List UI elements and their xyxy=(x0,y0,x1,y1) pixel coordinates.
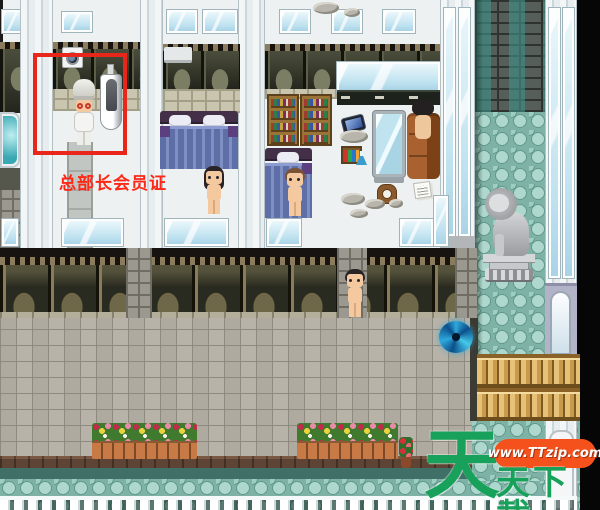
mirror-base xyxy=(374,177,404,183)
cornice-dentils xyxy=(0,42,20,49)
book-row xyxy=(271,135,295,144)
stone xyxy=(341,193,365,205)
watermark-big-char: 天 xyxy=(424,427,500,503)
book-row xyxy=(304,123,328,132)
watermark-url: www.TTzip.com xyxy=(488,446,600,461)
potion-bottles xyxy=(344,150,359,162)
bed-trim xyxy=(160,126,170,137)
book-row xyxy=(304,111,328,120)
book-row xyxy=(271,99,295,108)
book-row xyxy=(271,111,295,120)
cornice-dentils xyxy=(265,44,440,51)
lion-foreleg xyxy=(495,234,504,256)
brick-wainscot xyxy=(163,89,240,113)
npc-body xyxy=(288,186,302,203)
highlight-box xyxy=(33,53,127,155)
window xyxy=(167,10,197,33)
watermark-brand: 天下載 xyxy=(496,466,600,510)
flower-bed xyxy=(297,423,398,459)
npc-legs xyxy=(349,303,361,317)
paper-lines xyxy=(416,185,428,195)
stone xyxy=(365,199,385,209)
npc-body xyxy=(348,287,362,304)
window xyxy=(62,219,123,246)
book-row xyxy=(304,99,328,108)
book-row xyxy=(304,135,328,144)
window xyxy=(165,219,228,246)
window xyxy=(267,219,301,246)
statue-pedestal-base xyxy=(485,268,533,282)
wall-pillar xyxy=(238,0,265,248)
stone xyxy=(344,8,360,17)
npc-legs xyxy=(289,202,301,216)
phone-screen xyxy=(345,117,363,131)
bed-trim xyxy=(228,126,238,137)
npc-street-walker[interactable] xyxy=(343,269,367,319)
stone xyxy=(389,199,403,208)
arched-door[interactable] xyxy=(550,291,571,355)
npc-brown-hair[interactable] xyxy=(283,168,307,218)
stone xyxy=(350,209,368,218)
npc-legs xyxy=(208,200,220,214)
exterior-cornice xyxy=(0,248,477,257)
stone xyxy=(340,130,368,143)
alley-pillar xyxy=(126,248,152,320)
lion-statue[interactable] xyxy=(477,186,539,284)
double-bed[interactable] xyxy=(160,111,238,169)
annotation-text: 总部长会员证 xyxy=(59,169,167,194)
air-conditioner xyxy=(164,47,192,63)
stone xyxy=(313,2,339,14)
flower-bed xyxy=(92,423,197,459)
alley-pillar xyxy=(455,248,477,320)
tall-window-strip xyxy=(459,8,470,236)
game-viewport[interactable]: 总部长会员证 天 www.TTzip.com 天下載 xyxy=(0,0,600,510)
bookshelf[interactable] xyxy=(267,94,299,146)
window xyxy=(400,219,433,246)
teal-ledge xyxy=(0,468,472,479)
lion-head xyxy=(489,194,509,212)
corridor-wall xyxy=(475,0,545,112)
npc-face xyxy=(287,173,303,186)
npc-back xyxy=(415,115,431,139)
planter-box xyxy=(92,441,197,459)
paper-stack xyxy=(413,181,432,199)
planter-box xyxy=(297,441,398,459)
npc-couch-sitter[interactable] xyxy=(411,99,435,143)
potted-flower xyxy=(399,437,413,469)
bed-blanket xyxy=(160,126,238,169)
clock-face xyxy=(382,189,392,199)
standing-mirror[interactable] xyxy=(372,110,406,178)
bathtub[interactable] xyxy=(0,112,20,168)
bath-water xyxy=(3,116,17,164)
npc-long-hair-woman[interactable] xyxy=(202,166,226,216)
window xyxy=(203,10,237,33)
window xyxy=(383,10,415,33)
tall-window-strip xyxy=(563,8,574,278)
window xyxy=(280,10,310,33)
npc-face xyxy=(206,171,222,184)
npc-hair xyxy=(412,99,434,116)
wooden-fence xyxy=(477,388,580,421)
wooden-fence xyxy=(477,354,580,388)
large-window xyxy=(337,62,440,92)
blue-portal[interactable] xyxy=(439,321,473,353)
window xyxy=(62,12,92,32)
exterior-arched-wall xyxy=(0,265,477,312)
couch-seam xyxy=(409,155,427,157)
flower-pot xyxy=(401,457,411,468)
bookshelf[interactable] xyxy=(300,94,332,146)
ornate-wall xyxy=(0,49,20,113)
tall-window-strip xyxy=(549,8,560,278)
mirror-glass xyxy=(376,114,402,174)
book-row xyxy=(271,123,295,132)
cornice-dentils xyxy=(0,257,477,265)
npc-face xyxy=(347,274,363,287)
map-edge xyxy=(577,0,600,510)
npc-body xyxy=(207,184,221,201)
wall-base xyxy=(0,168,20,190)
window xyxy=(434,196,448,246)
flower-blooms xyxy=(399,437,413,457)
window xyxy=(2,219,18,246)
